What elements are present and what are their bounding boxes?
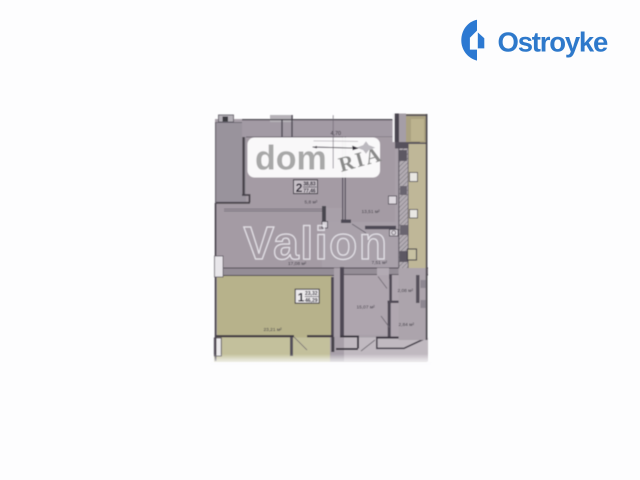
svg-text:2,08 м²: 2,08 м²: [398, 288, 414, 294]
svg-text:2: 2: [296, 181, 303, 195]
svg-text:5,8 м²: 5,8 м²: [305, 199, 318, 205]
svg-text:dom: dom: [255, 140, 327, 178]
svg-text:23,21 м²: 23,21 м²: [264, 327, 283, 333]
svg-text:Ostroyke: Ostroyke: [498, 27, 609, 58]
svg-text:46,29: 46,29: [305, 298, 318, 304]
svg-text:Valion: Valion: [244, 217, 389, 269]
svg-text:77,46: 77,46: [303, 188, 316, 194]
svg-text:4,70: 4,70: [331, 131, 342, 137]
svg-text:13,51 м²: 13,51 м²: [362, 209, 381, 215]
svg-text:1: 1: [298, 290, 305, 304]
svg-text:15,07 м²: 15,07 м²: [357, 304, 376, 310]
svg-text:2,84 м²: 2,84 м²: [399, 322, 415, 328]
